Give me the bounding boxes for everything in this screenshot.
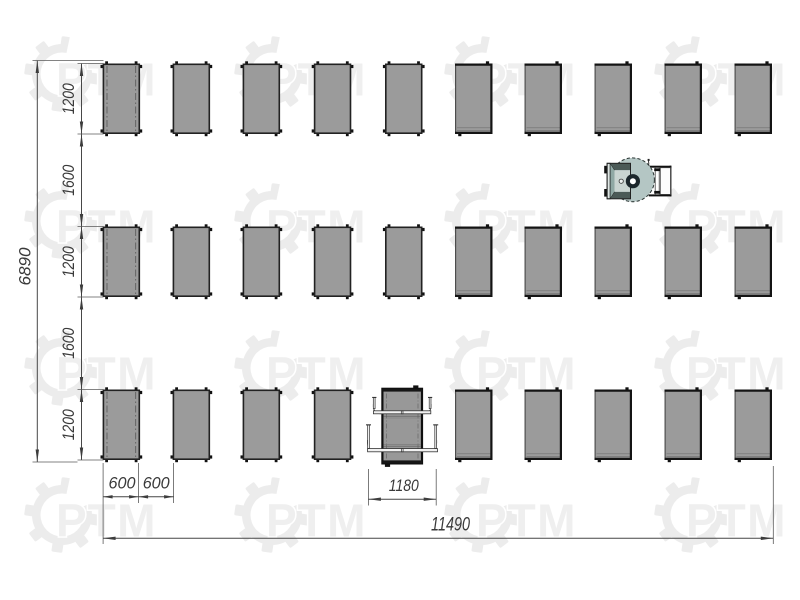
svg-text:6890: 6890 xyxy=(15,247,34,286)
svg-text:1200: 1200 xyxy=(59,409,78,440)
svg-text:1600: 1600 xyxy=(59,327,78,358)
svg-text:600: 600 xyxy=(109,473,137,492)
svg-text:1180: 1180 xyxy=(389,476,419,495)
svg-text:11490: 11490 xyxy=(431,515,470,536)
svg-text:1200: 1200 xyxy=(59,83,78,114)
svg-text:600: 600 xyxy=(143,473,171,492)
svg-text:1200: 1200 xyxy=(59,246,78,277)
svg-text:1600: 1600 xyxy=(59,164,78,195)
